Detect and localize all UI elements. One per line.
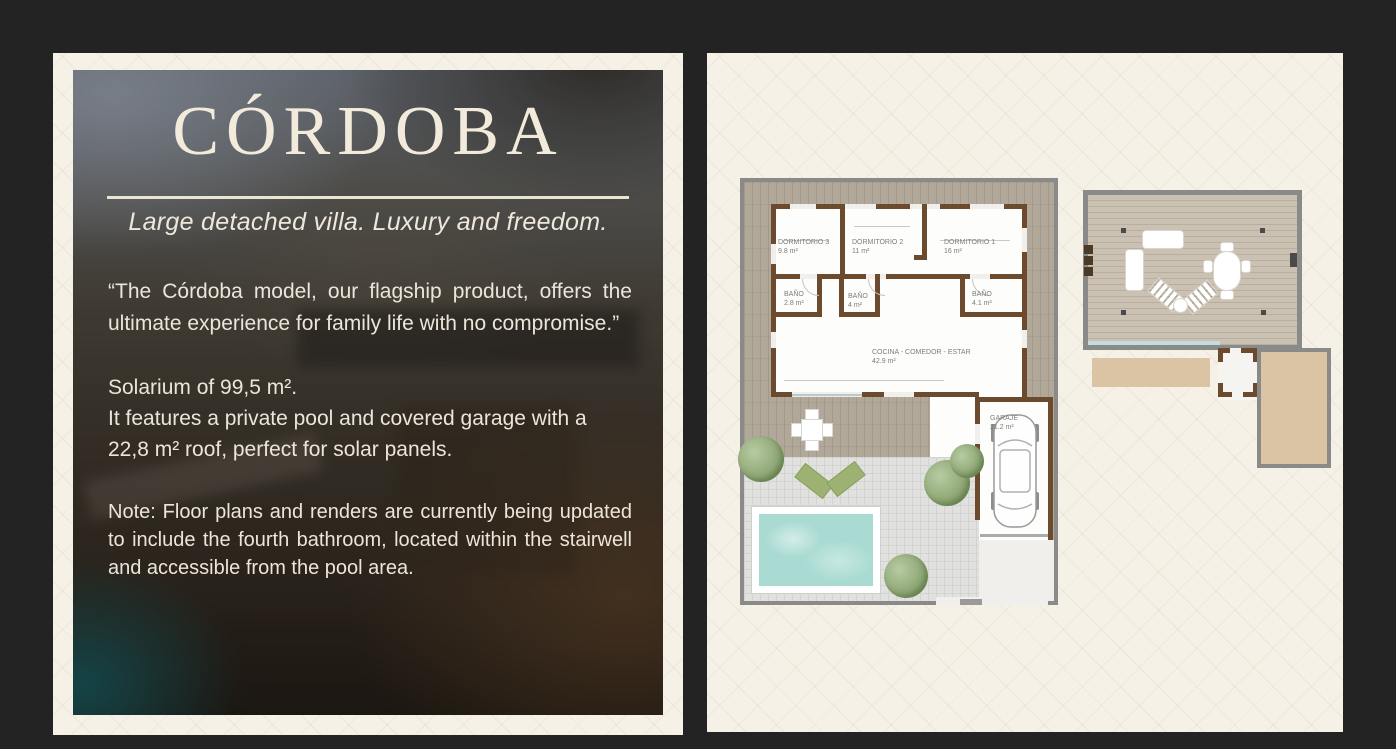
sofa-icon	[1143, 231, 1183, 248]
bathroom-label: BAÑO 4.1 m²	[972, 290, 1012, 308]
room-area: 11 m²	[852, 247, 918, 256]
room-area: 2.8 m²	[784, 299, 824, 308]
roof-section	[1092, 358, 1210, 387]
wall	[771, 312, 817, 317]
wall	[922, 204, 927, 260]
garage-label: GARAJE 21.2 m²	[990, 414, 1042, 432]
window	[771, 332, 776, 348]
room-area: 42.9 m²	[872, 357, 982, 366]
photo-text-overlay: CÓRDOBA Large detached villa. Luxury and…	[73, 70, 663, 715]
floorplan-card: DORMITORIO 3 9.8 m² DORMITORIO 2 11 m² D…	[707, 53, 1343, 732]
pool-water	[759, 514, 873, 586]
wall-block	[1290, 253, 1297, 267]
sliding-glass-door	[792, 394, 862, 396]
room-area: 16 m²	[944, 247, 1014, 256]
room-name: COCINA - COMEDOR - ESTAR	[872, 348, 982, 357]
patio-table	[790, 408, 834, 452]
glass-balustrade	[1088, 341, 1220, 345]
window	[842, 204, 876, 209]
chair-icon	[1221, 291, 1233, 299]
solarium-line: It features a private pool and covered g…	[108, 403, 632, 434]
plant-icon	[950, 444, 984, 478]
plant-icon	[884, 554, 928, 598]
wall	[1048, 397, 1053, 540]
chair-icon	[806, 441, 818, 450]
bedroom-1-label: DORMITORIO 1 16 m²	[944, 238, 1014, 256]
lounge-chair-icon	[1126, 250, 1143, 290]
room-name: DORMITORIO 1	[944, 238, 1014, 247]
room-name: GARAJE	[990, 414, 1042, 423]
bathroom-label: BAÑO 4 m²	[848, 292, 888, 310]
villa-photo: CÓRDOBA Large detached villa. Luxury and…	[73, 70, 663, 715]
note-paragraph: Note: Floor plans and renders are curren…	[108, 498, 632, 582]
bedroom-3-label: DORMITORIO 3 9.8 m²	[778, 238, 844, 256]
side-table-icon	[1174, 299, 1187, 312]
wall	[960, 274, 965, 317]
driveway	[975, 540, 1054, 601]
room-name: BAÑO	[848, 292, 888, 301]
wall	[771, 204, 776, 397]
door-opening	[884, 392, 914, 397]
window	[1022, 330, 1027, 348]
spotlight-icon	[1261, 310, 1266, 315]
title-divider	[107, 196, 629, 199]
garage-roof	[1257, 348, 1331, 468]
bedroom-2-label: DORMITORIO 2 11 m²	[852, 238, 918, 256]
room-name: DORMITORIO 2	[852, 238, 918, 247]
driveway-opening	[936, 597, 1048, 605]
wall	[839, 312, 880, 317]
room-name: BAÑO	[972, 290, 1012, 299]
window	[771, 244, 776, 264]
wall	[975, 397, 1053, 402]
chair-icon	[792, 424, 801, 436]
room-name: BAÑO	[784, 290, 824, 299]
stair-access-block	[1084, 256, 1093, 265]
window	[970, 204, 1004, 209]
sun-lounger-icon	[1183, 281, 1218, 314]
curb-step	[960, 599, 982, 605]
room-area: 9.8 m²	[778, 247, 844, 256]
window	[1022, 228, 1027, 252]
room-area: 4.1 m²	[972, 299, 1012, 308]
chair-icon	[1242, 261, 1250, 272]
solarium-plan	[1083, 183, 1337, 478]
kitchen-living-label: COCINA - COMEDOR - ESTAR 42.9 m²	[872, 348, 982, 366]
room-area: 21.2 m²	[990, 423, 1042, 432]
model-subtitle: Large detached villa. Luxury and freedom…	[73, 208, 663, 237]
wall	[1218, 392, 1232, 397]
door-opening	[975, 424, 980, 444]
room-area: 4 m²	[848, 301, 888, 310]
plant-icon	[738, 436, 784, 482]
garage-door	[980, 534, 1048, 537]
stair-access-block	[1084, 245, 1093, 254]
info-card: CÓRDOBA Large detached villa. Luxury and…	[53, 53, 683, 735]
ground-floor-plan: DORMITORIO 3 9.8 m² DORMITORIO 2 11 m² D…	[740, 178, 1058, 605]
table-top	[802, 420, 822, 440]
solarium-line: Solarium of 99,5 m².	[108, 372, 632, 403]
solarium-line: 22,8 m² roof, perfect for solar panels.	[108, 434, 632, 465]
stair-access-block	[1084, 267, 1093, 276]
solarium-deck	[1083, 190, 1302, 350]
spotlight-icon	[1260, 228, 1265, 233]
chair-icon	[1221, 243, 1233, 251]
chair-icon	[806, 410, 818, 419]
dimension-line	[854, 226, 910, 227]
pool	[752, 507, 880, 593]
quote-paragraph: “The Córdoba model, our flagship product…	[108, 276, 632, 340]
dimension-line	[784, 380, 944, 381]
wall	[960, 312, 1027, 317]
wall	[839, 274, 844, 317]
spotlight-icon	[1121, 310, 1126, 315]
window	[790, 204, 816, 209]
spotlight-icon	[1121, 228, 1126, 233]
chair-icon	[823, 424, 832, 436]
model-title: CÓRDOBA	[73, 92, 663, 172]
wall	[1218, 348, 1230, 353]
solarium-paragraph: Solarium of 99,5 m². It features a priva…	[108, 372, 632, 465]
room-name: DORMITORIO 3	[778, 238, 844, 247]
chair-icon	[1204, 261, 1212, 272]
dining-table-icon	[1214, 252, 1240, 290]
brochure-page: CÓRDOBA Large detached villa. Luxury and…	[0, 0, 1396, 749]
bathroom-label: BAÑO 2.8 m²	[784, 290, 824, 308]
